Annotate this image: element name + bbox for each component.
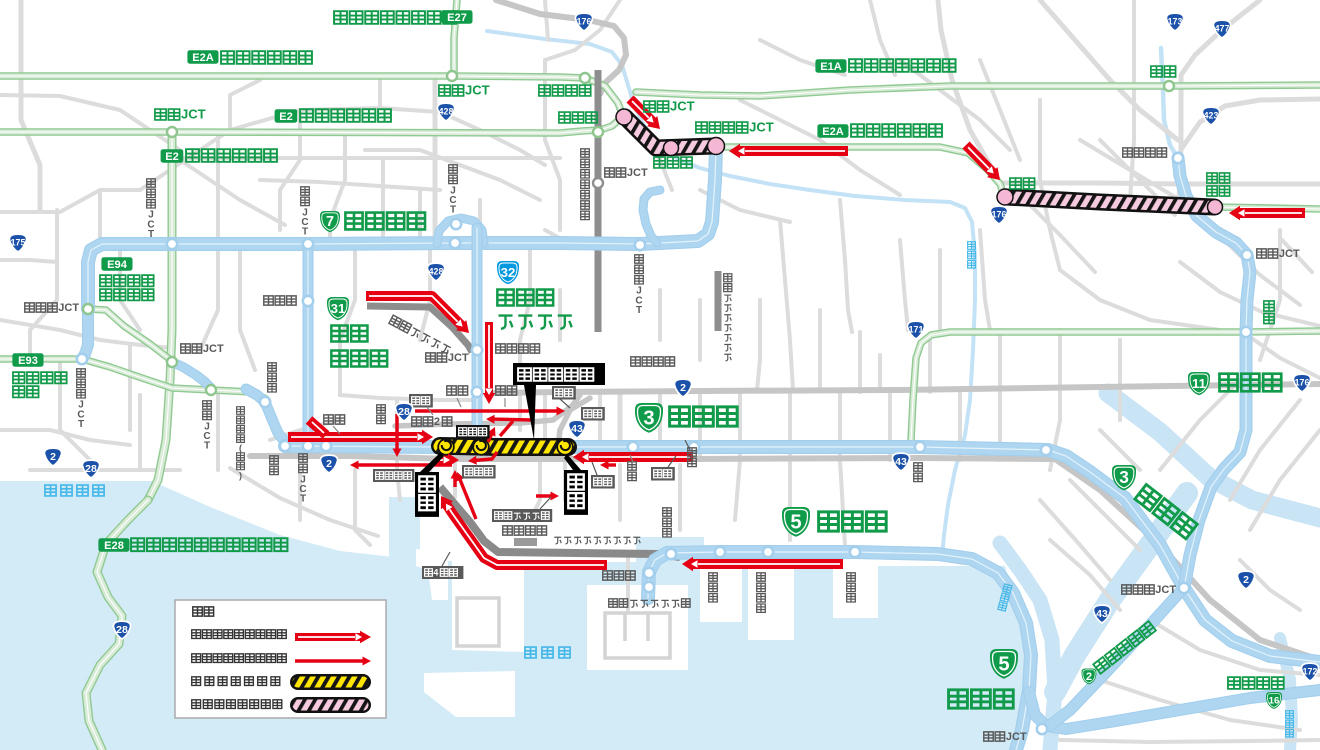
svg-text:28: 28 <box>398 406 410 418</box>
svg-text:E93: E93 <box>18 355 38 367</box>
svg-text:4: 4 <box>433 567 438 577</box>
svg-text:428: 428 <box>439 107 454 117</box>
svg-text:T: T <box>204 440 210 451</box>
svg-text:477: 477 <box>1215 24 1230 34</box>
svg-text:7: 7 <box>326 214 334 230</box>
svg-text:JCT: JCT <box>1279 248 1300 260</box>
svg-text:JCT: JCT <box>203 343 224 355</box>
svg-text:176: 176 <box>1295 378 1310 388</box>
svg-text:423: 423 <box>1204 111 1219 121</box>
svg-text:E2A: E2A <box>192 52 214 64</box>
svg-text:32: 32 <box>501 265 516 280</box>
svg-text:(: ( <box>239 443 242 453</box>
svg-text:2: 2 <box>50 451 56 463</box>
svg-text:43: 43 <box>571 423 583 435</box>
svg-text:JCT: JCT <box>58 302 79 314</box>
svg-text:T: T <box>148 229 154 240</box>
svg-text:175: 175 <box>11 238 26 248</box>
svg-text:43: 43 <box>895 456 907 468</box>
svg-text:16: 16 <box>1269 696 1280 707</box>
svg-text:2: 2 <box>1086 671 1092 683</box>
svg-text:JCT: JCT <box>181 107 206 122</box>
svg-text:): ) <box>239 470 242 480</box>
svg-text:T: T <box>450 204 456 215</box>
svg-text:T: T <box>78 419 84 430</box>
svg-text:JCT: JCT <box>670 99 695 114</box>
svg-text:176: 176 <box>577 17 592 27</box>
svg-text:E2A: E2A <box>822 126 844 138</box>
svg-text:428: 428 <box>429 267 444 277</box>
svg-text:E2: E2 <box>165 151 179 163</box>
svg-text:E94: E94 <box>107 259 128 271</box>
svg-text:172: 172 <box>1303 667 1318 677</box>
svg-text:JCT: JCT <box>465 83 490 98</box>
svg-text:28: 28 <box>116 624 128 636</box>
svg-text:28: 28 <box>85 463 97 475</box>
svg-text:E28: E28 <box>104 540 124 552</box>
svg-text:176: 176 <box>992 210 1007 220</box>
svg-text:T: T <box>300 493 306 504</box>
svg-text:T: T <box>636 305 642 316</box>
svg-text:173: 173 <box>1168 17 1183 27</box>
svg-text:JCT: JCT <box>448 352 469 364</box>
svg-text:2: 2 <box>326 458 332 470</box>
svg-text:JCT: JCT <box>627 167 648 179</box>
svg-text:E27: E27 <box>447 12 467 24</box>
svg-text:3: 3 <box>643 407 654 429</box>
svg-text:3: 3 <box>1119 467 1129 487</box>
svg-text:JCT: JCT <box>1155 584 1176 596</box>
svg-text:JCT: JCT <box>749 120 774 135</box>
svg-text:31: 31 <box>331 301 346 316</box>
svg-text:JCT: JCT <box>1006 731 1027 743</box>
svg-text:2: 2 <box>680 382 686 394</box>
svg-text:171: 171 <box>909 325 924 335</box>
svg-text:11: 11 <box>1192 376 1206 391</box>
svg-text:E1A: E1A <box>820 61 842 73</box>
svg-text:2: 2 <box>434 416 440 428</box>
svg-text:2: 2 <box>1243 574 1249 586</box>
svg-text:E2: E2 <box>279 111 293 123</box>
svg-text:43: 43 <box>1096 608 1108 620</box>
svg-text:T: T <box>302 226 308 237</box>
svg-text:5: 5 <box>790 511 801 533</box>
svg-text:5: 5 <box>998 653 1009 675</box>
